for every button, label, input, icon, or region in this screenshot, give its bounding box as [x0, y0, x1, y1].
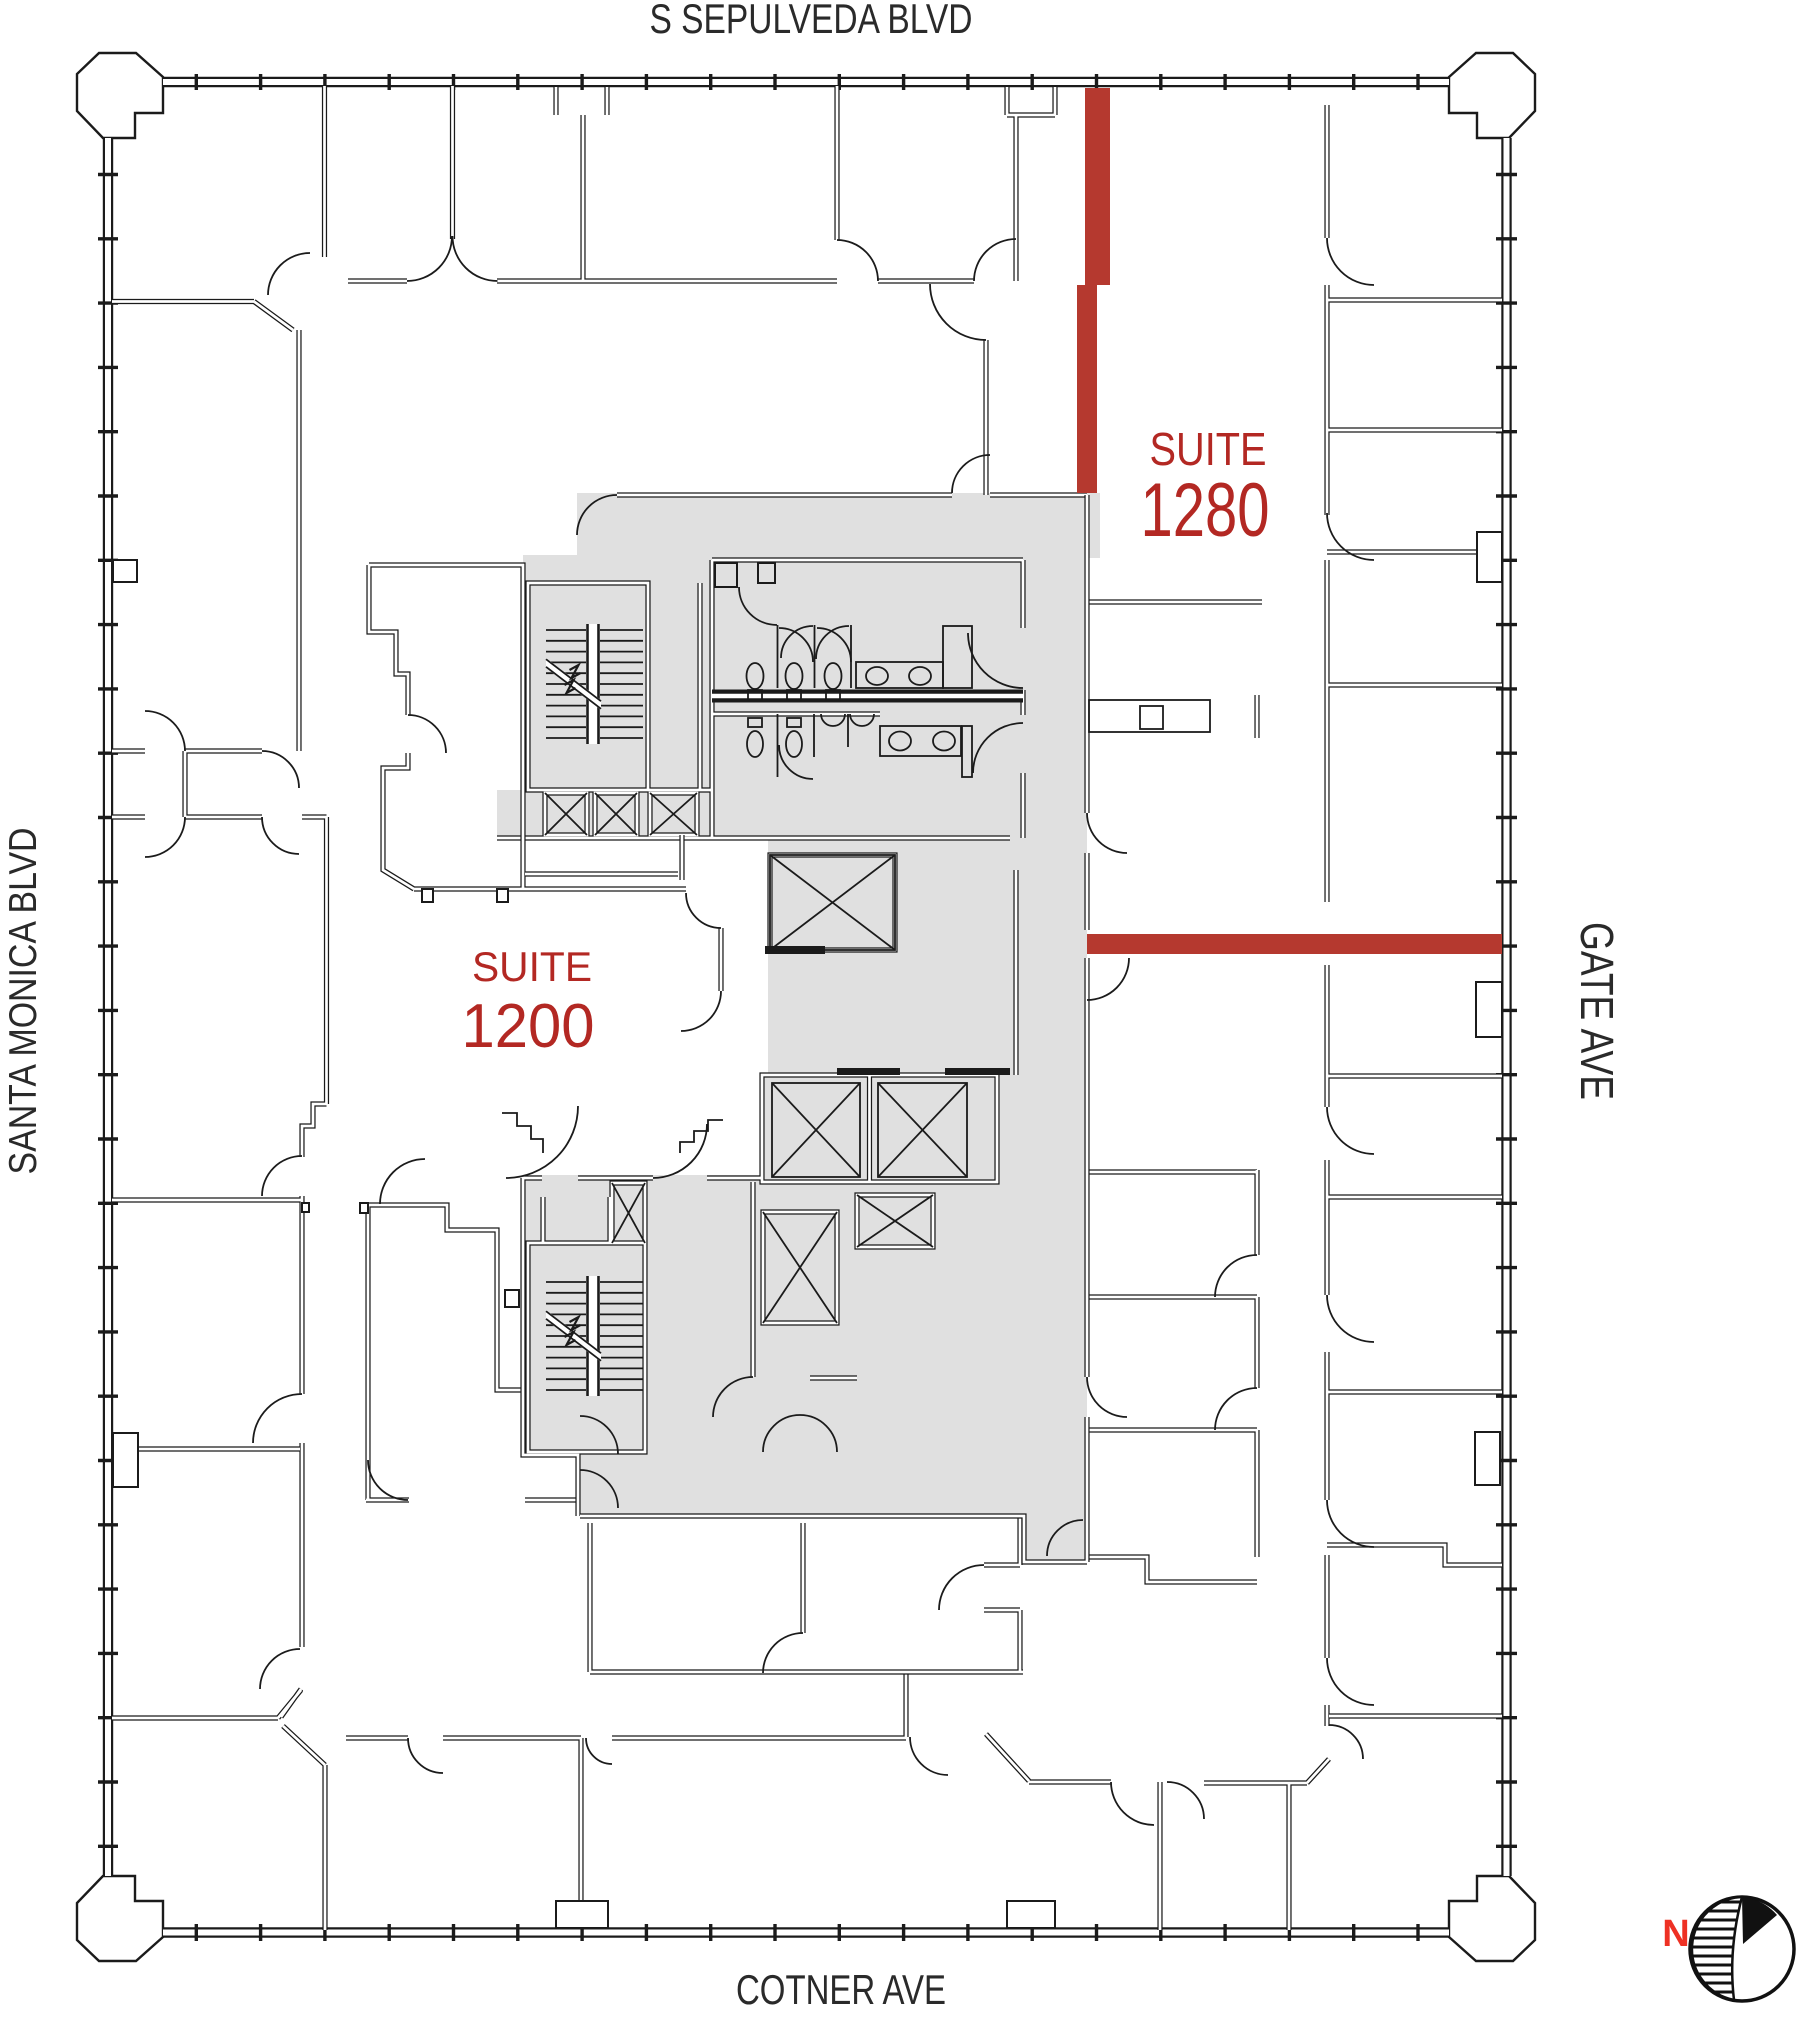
svg-text:SUITE: SUITE: [472, 943, 592, 990]
svg-text:SANTA MONICA BLVD: SANTA MONICA BLVD: [2, 828, 45, 1175]
svg-text:S SEPULVEDA BLVD: S SEPULVEDA BLVD: [650, 0, 973, 42]
svg-text:COTNER AVE: COTNER AVE: [736, 1966, 946, 2013]
svg-text:1200: 1200: [462, 992, 595, 1061]
svg-text:N: N: [1662, 1913, 1689, 1955]
svg-text:GATE AVE: GATE AVE: [1571, 922, 1623, 1100]
svg-text:1280: 1280: [1141, 468, 1270, 553]
